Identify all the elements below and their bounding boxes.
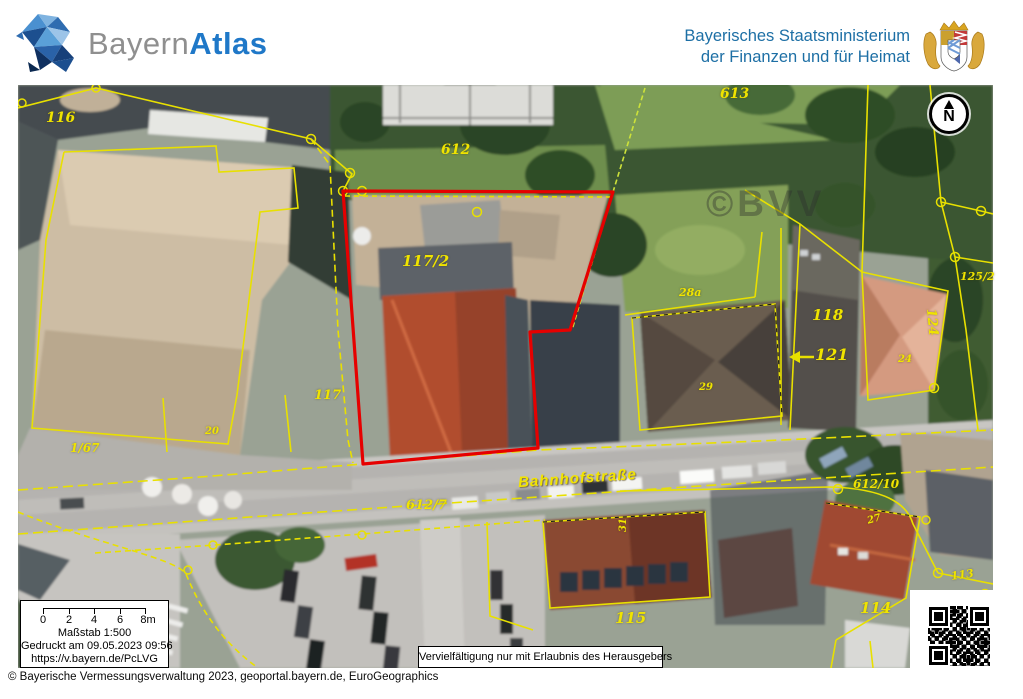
ministry-title: Bayerisches Staatsministerium der Finanz… xyxy=(684,26,910,68)
permalink-url: https://v.bayern.de/PcLVG xyxy=(21,653,168,665)
brand-part-gray: Bayern xyxy=(88,26,189,61)
tick-label-4: 4 xyxy=(91,614,97,626)
scale-box: 0 2 4 6 8m Maßstab 1:500 Gedruckt am 09.… xyxy=(20,600,169,668)
aerial-scenery xyxy=(18,85,993,668)
tick-label-0: 0 xyxy=(40,614,46,626)
copyright-line: © Bayerische Vermessungsverwaltung 2023,… xyxy=(8,671,438,683)
brand-part-blue: Atlas xyxy=(189,26,267,61)
qr-code xyxy=(928,606,990,666)
north-arrow-letter: N xyxy=(932,108,966,126)
bayernatlas-print-page: BayernAtlas Bayerisches Staatsministeriu… xyxy=(0,0,1023,699)
bavaria-coat-of-arms-icon xyxy=(920,18,988,74)
tick-label-2: 2 xyxy=(66,614,72,626)
qr-finder-top-left xyxy=(929,607,948,626)
ministry-line2: der Finanzen und für Heimat xyxy=(684,47,910,68)
scale-text: Maßstab 1:500 xyxy=(21,627,168,639)
printed-date-text: Gedruckt am 09.05.2023 09:56 xyxy=(21,640,168,652)
ministry-line1: Bayerisches Staatsministerium xyxy=(684,26,910,47)
tick-label-6: 6 xyxy=(117,614,123,626)
brand-title: BayernAtlas xyxy=(88,26,268,62)
north-arrow-icon: N xyxy=(929,94,969,134)
tick-label-8m: 8m xyxy=(140,614,155,626)
qr-finder-top-right xyxy=(970,607,989,626)
aerial-map-svg xyxy=(18,85,993,668)
map-image xyxy=(18,85,993,668)
bayernatlas-logo-icon xyxy=(14,10,84,76)
header: BayernAtlas Bayerisches Staatsministeriu… xyxy=(0,0,1023,85)
qr-finder-bottom-left xyxy=(929,646,948,665)
reproduction-notice: Vervielfältigung nur mit Erlaubnis des H… xyxy=(418,646,663,668)
